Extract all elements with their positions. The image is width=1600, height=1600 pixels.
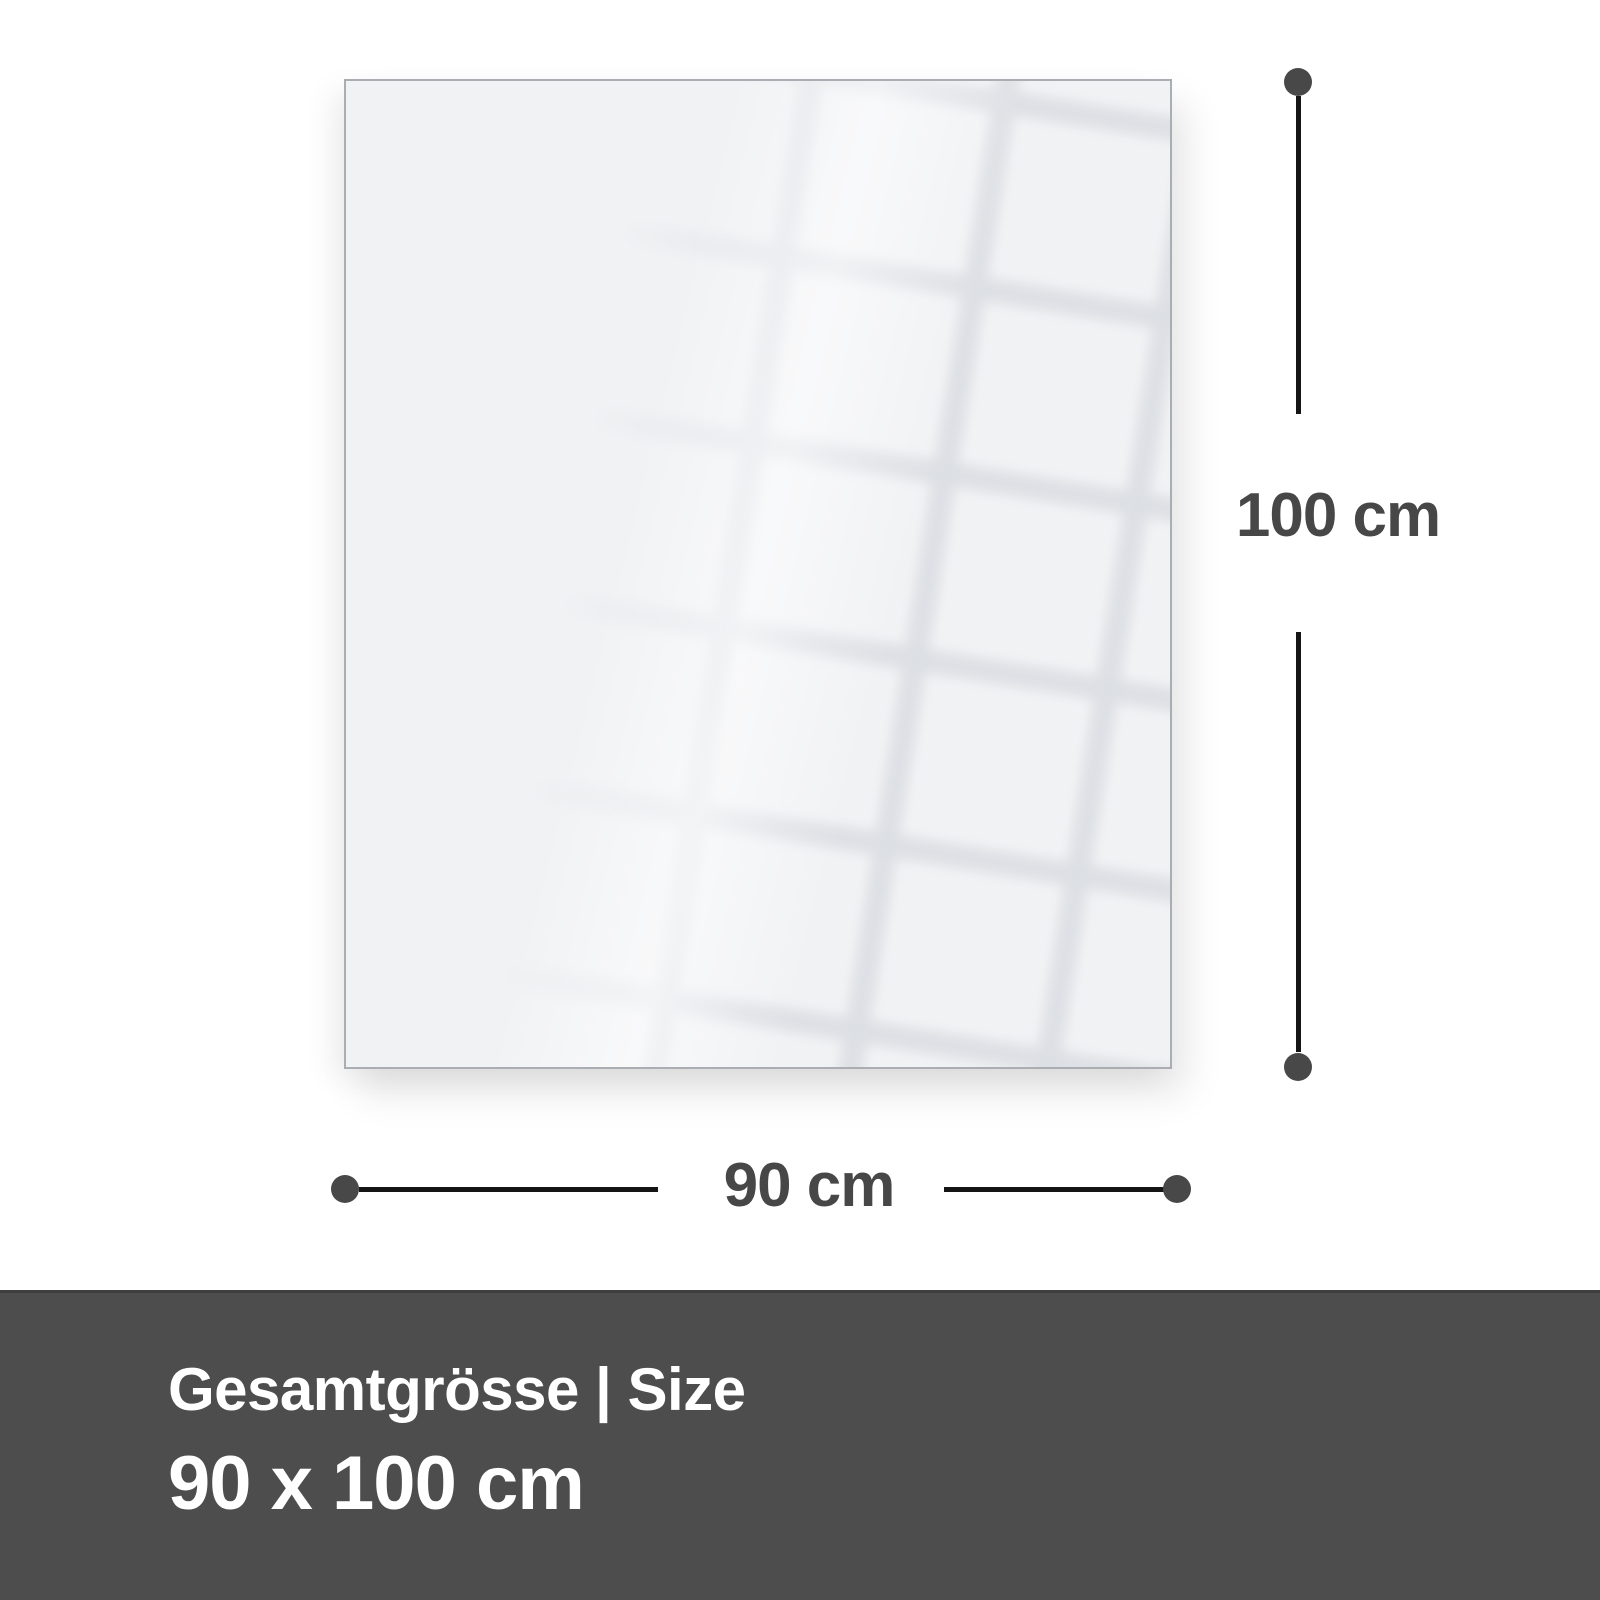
height-dimension-top-endpoint-dot — [1284, 68, 1312, 96]
height-dimension-bottom-endpoint-dot — [1284, 1053, 1312, 1081]
width-dimension-left-endpoint-dot — [331, 1175, 359, 1203]
product-size-diagram: 100 cm 90 cm Gesamtgrösse | Size 90 x 10… — [0, 0, 1600, 1600]
width-dimension-line-left-segment — [359, 1187, 658, 1192]
height-dimension-line-lower-segment — [1296, 632, 1301, 1052]
glass-sheen-highlight — [346, 81, 1170, 1067]
product-panel — [344, 79, 1172, 1069]
size-caption-text-block: Gesamtgrösse | Size 90 x 100 cm — [168, 1355, 746, 1527]
height-dimension-line-upper-segment — [1296, 96, 1301, 414]
size-caption-title: Gesamtgrösse | Size — [168, 1355, 746, 1424]
size-caption-bar: Gesamtgrösse | Size 90 x 100 cm — [0, 1290, 1600, 1600]
height-dimension-label: 100 cm — [1233, 483, 1443, 549]
width-dimension-label: 90 cm — [714, 1153, 904, 1219]
width-dimension-right-endpoint-dot — [1163, 1175, 1191, 1203]
width-dimension-line-right-segment — [944, 1187, 1167, 1192]
size-caption-value: 90 x 100 cm — [168, 1440, 746, 1527]
